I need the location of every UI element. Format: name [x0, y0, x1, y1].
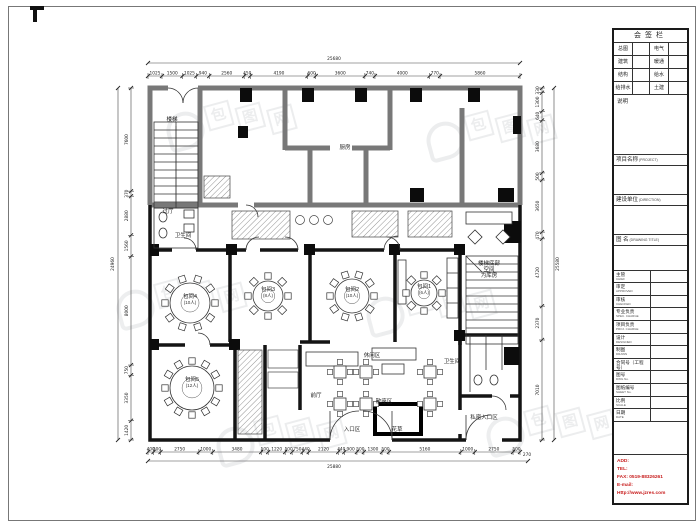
dim-text: 8000 — [124, 305, 130, 316]
floor-plan: 1025150010259402560450419060036007404000… — [0, 0, 700, 527]
sign-value-cell — [669, 82, 687, 95]
dim-text: 3350 — [124, 392, 130, 403]
dim-text: 470 — [535, 231, 541, 239]
dim-text: 1300 — [535, 96, 541, 107]
dim-text: 3600 — [335, 71, 346, 77]
contact-block: ADD:TEL:FAX: 0519-88326261E-mail:Http://… — [614, 455, 687, 503]
dim-text: 2750 — [174, 447, 185, 453]
section-value-box — [614, 246, 687, 271]
dim-text: 1500 — [167, 71, 178, 77]
dim-text: 5160 — [419, 447, 430, 453]
sign-value-cell — [633, 69, 650, 82]
approval-row: 制图DRAWN — [614, 346, 687, 359]
dim-text: 1000 — [462, 447, 473, 453]
approval-value — [651, 384, 687, 396]
sign-label-cell: 给水 — [650, 69, 669, 82]
room-label-stairNote: 楼梯底部 空间 为库房 — [478, 261, 500, 279]
dim-text: 370 — [124, 189, 130, 197]
sign-label-cell: 土建 — [650, 82, 669, 95]
approval-row: 比例SCALE — [614, 397, 687, 410]
dim-text: 440 — [302, 447, 310, 453]
room-label-room2: 包间2(10人) — [345, 287, 359, 299]
room-label-loungeArea: 休闲区 — [364, 353, 381, 359]
room-label-privateEntrance: 私密入口区 — [470, 415, 498, 421]
approval-value — [651, 334, 687, 346]
approval-label: 审核CHECKED — [614, 296, 651, 308]
sign-value-cell — [633, 56, 650, 69]
approval-rows: 主管CHIEF审定APPROVED审核CHECKED专业负责SPEC. CHAR… — [614, 271, 687, 422]
dim-text: 7600 — [124, 134, 130, 145]
dim-text: 7010 — [535, 384, 541, 395]
sign-label-cell: 给排水 — [614, 82, 633, 95]
dim-text: 3680 — [535, 141, 541, 152]
dim-text: 5860 — [475, 71, 486, 77]
room-label-flowers: 花草 — [391, 427, 402, 433]
approval-row: 审定APPROVED — [614, 283, 687, 296]
dim-text: 450 — [243, 71, 251, 77]
room-label-openSeating: 散座区 — [376, 399, 393, 405]
room-label-entrance: 入口区 — [344, 427, 361, 433]
dim-text: 4000 — [397, 71, 408, 77]
room-capacity: (10人) — [183, 300, 197, 306]
room-label-room1: 包间1(6人) — [417, 284, 431, 296]
sign-value-cell — [669, 69, 687, 82]
approval-row: 图纸编号SHEET No. — [614, 384, 687, 397]
approval-row: 图号DWG No. — [614, 371, 687, 384]
title-section: 项目名称 (PROJECT) — [614, 155, 687, 195]
dim-text: 3480 — [232, 447, 243, 453]
title-section: 图 名 (DRAWING TITLE) — [614, 235, 687, 271]
dim-text: 1025 — [184, 71, 195, 77]
approval-label: 专业负责SPEC. CHARGE — [614, 308, 651, 320]
sign-block-title: 会签栏 — [614, 30, 687, 43]
dim-text: 770 — [431, 71, 439, 77]
room-label-room5: 包间5(12人) — [185, 377, 199, 389]
dim-text: 1560 — [124, 240, 130, 251]
dim-text: 4720 — [535, 267, 541, 278]
dim-text: 24960 — [110, 257, 116, 271]
title-sections: 项目名称 (PROJECT)建设单位 (DIRECTION)图 名 (DRAWI… — [614, 155, 687, 271]
section-label: 建设单位 (DIRECTION) — [614, 195, 687, 206]
dim-text: 940 — [199, 71, 207, 77]
dim-text: 600 — [308, 71, 316, 77]
drawing-sheet: 包图网包图网包图网包图网包图网包图网 — [0, 0, 700, 527]
dim-text: 750 — [293, 447, 301, 453]
dim-text: 2750 — [488, 447, 499, 453]
dim-text: 4190 — [273, 71, 284, 77]
dim-text: 500 — [356, 447, 364, 453]
approval-label: 制图DRAWN — [614, 346, 651, 358]
approval-value — [651, 359, 687, 371]
title-section: 建设单位 (DIRECTION) — [614, 195, 687, 235]
sign-value-cell — [633, 43, 650, 56]
dim-text: 750 — [124, 366, 130, 374]
sign-label-cell: 电气 — [650, 43, 669, 56]
approval-value — [651, 308, 687, 320]
approval-label: 审定APPROVED — [614, 283, 651, 295]
dim-text: 500 — [285, 447, 293, 453]
dim-text: 3650 — [535, 200, 541, 211]
approval-value — [651, 321, 687, 333]
remarks-label: 说明 — [617, 99, 628, 105]
approval-value — [651, 271, 687, 283]
dim-text: 500 — [381, 447, 389, 453]
approval-label: 设计DESIGNED — [614, 334, 651, 346]
empty-box — [614, 422, 687, 455]
contact-line: E-mail: — [617, 483, 684, 489]
dim-text: 25580 — [555, 257, 561, 271]
dim-text: 2560 — [221, 71, 232, 77]
contact-line: ADD: — [617, 459, 684, 465]
dim-text: 740 — [366, 71, 374, 77]
approval-label: 合同号（工程号）CONTRACT No. — [614, 359, 651, 371]
dim-text: 900 — [347, 447, 355, 453]
section-value-box — [614, 206, 687, 235]
contact-line: FAX: 0519-88326261 — [617, 475, 684, 481]
approval-row: 审核CHECKED — [614, 296, 687, 309]
sign-label-cell: 总图 — [614, 43, 633, 56]
dim-text: 25680 — [327, 56, 341, 62]
sign-label-cell: 建筑 — [614, 56, 633, 69]
sign-label-cell: 暖通 — [650, 56, 669, 69]
remarks-box: 说明 — [614, 95, 687, 155]
approval-row: 设计DESIGNED — [614, 334, 687, 347]
dim-text: 25880 — [327, 464, 341, 470]
dim-text: 270 — [523, 452, 531, 458]
sign-value-cell — [669, 56, 687, 69]
room-label-toiletL: 卫生间 — [175, 233, 192, 239]
approval-label: 比例SCALE — [614, 397, 651, 409]
dim-text: 330 — [535, 86, 541, 94]
dim-text: 1220 — [271, 447, 282, 453]
approval-label: 主管CHIEF — [614, 271, 651, 283]
room-label-vestibule: 过厅 — [162, 209, 173, 215]
dim-text: 500 — [512, 447, 520, 453]
approval-label: 项目负责PROJ. CHARGE — [614, 321, 651, 333]
dim-text: 2120 — [318, 447, 329, 453]
room-label-toiletR: 卫生间 — [444, 359, 461, 365]
dim-text: 1025 — [150, 71, 161, 77]
title-block: 会签栏 总图电气建筑暖通结构给水给排水土建 说明 项目名称 (PROJECT)建… — [612, 28, 689, 505]
dim-text: 2880 — [124, 210, 130, 221]
room-capacity: (8人) — [261, 293, 275, 299]
room-label-kitchen: 厨房 — [339, 145, 350, 151]
room-capacity: (6人) — [417, 290, 431, 296]
approval-value — [651, 371, 687, 383]
room-label-room4: 包间4(10人) — [183, 294, 197, 306]
furniture — [162, 271, 445, 418]
approval-value — [651, 397, 687, 409]
sign-grid: 总图电气建筑暖通结构给水给排水土建 — [614, 43, 687, 95]
approval-label: 图纸编号SHEET No. — [614, 384, 651, 396]
approval-label: 日期DATE — [614, 409, 651, 421]
sign-label-cell: 结构 — [614, 69, 633, 82]
room-capacity: (10人) — [345, 293, 359, 299]
section-label: 项目名称 (PROJECT) — [614, 155, 687, 166]
contact-line: TEL: — [617, 467, 684, 473]
sign-value-cell — [633, 82, 650, 95]
section-label: 图 名 (DRAWING TITLE) — [614, 235, 687, 246]
room-capacity: (12人) — [185, 383, 199, 389]
dim-text: 1000 — [200, 447, 211, 453]
approval-row: 专业负责SPEC. CHARGE — [614, 308, 687, 321]
approval-value — [651, 283, 687, 295]
dim-text: 1420 — [124, 425, 130, 436]
dim-text: 500 — [153, 447, 161, 453]
approval-value — [651, 296, 687, 308]
dim-text: 2370 — [535, 317, 541, 328]
room-label-frontHall: 前厅 — [310, 393, 321, 399]
approval-row: 项目负责PROJ. CHARGE — [614, 321, 687, 334]
section-value-box — [614, 166, 687, 195]
approval-row: 合同号（工程号）CONTRACT No. — [614, 359, 687, 372]
room-label-room3: 包间3(8人) — [261, 287, 275, 299]
approval-value — [651, 346, 687, 358]
approval-value — [651, 409, 687, 421]
approval-label: 图号DWG No. — [614, 371, 651, 383]
sign-value-cell — [669, 43, 687, 56]
dim-text: 640 — [535, 111, 541, 119]
stair-top-left — [154, 122, 198, 208]
dim-text: 500 — [535, 172, 541, 180]
approval-row: 日期DATE — [614, 409, 687, 422]
approval-row: 主管CHIEF — [614, 271, 687, 284]
dim-text: 500 — [261, 447, 269, 453]
dim-text: 1300 — [367, 447, 378, 453]
room-label-stair: 楼梯 — [166, 117, 177, 123]
contact-line: Http://www.jzres.com — [617, 491, 684, 497]
dim-text: 440 — [337, 447, 345, 453]
